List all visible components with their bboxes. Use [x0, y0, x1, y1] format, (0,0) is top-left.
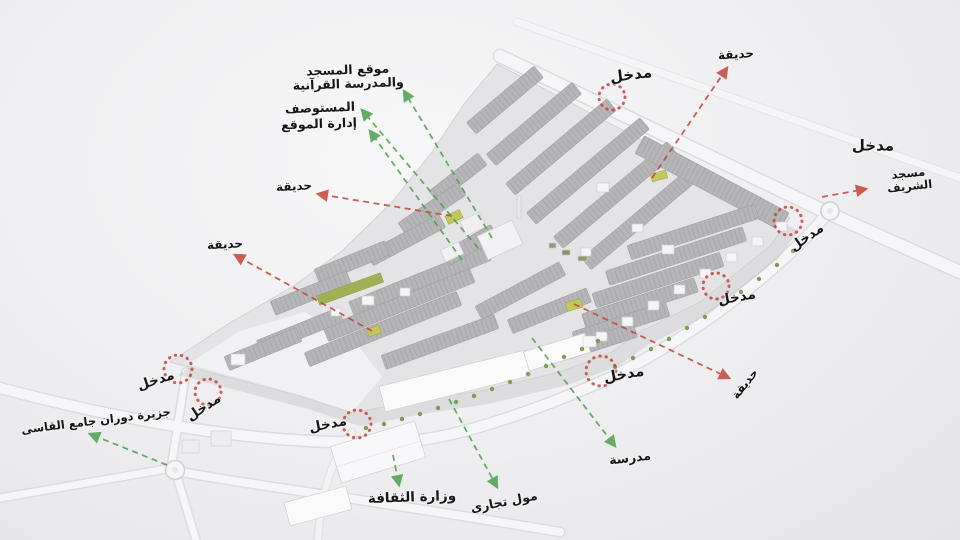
arrow-sharif-mosque: [822, 189, 866, 197]
arrow-mall: [449, 399, 497, 487]
site-plan-rendering: [0, 0, 960, 540]
arrow-qasi-roundabout: [90, 434, 167, 465]
entrance-marker-w2: [195, 379, 221, 405]
site-plan-canvas: موقع المسجد والمدرسة القرآنيةالمستوصفإدا…: [0, 0, 960, 540]
minaret: [517, 196, 521, 218]
